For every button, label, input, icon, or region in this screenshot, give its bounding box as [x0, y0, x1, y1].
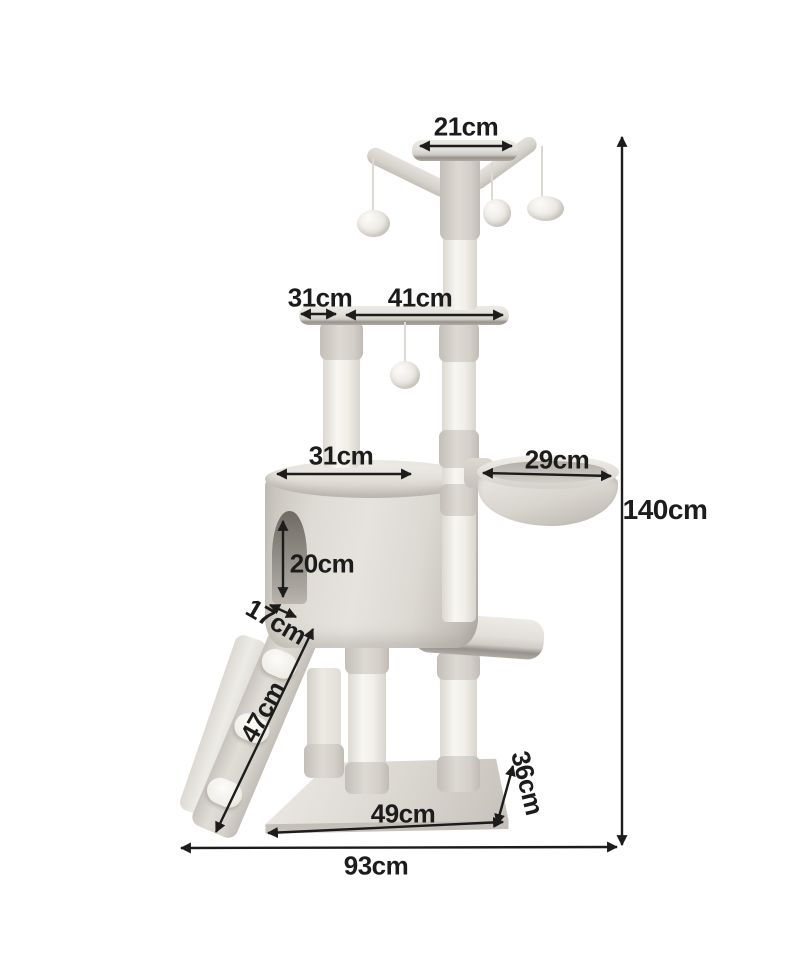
- dim-label-base-front-width: 49cm: [371, 799, 436, 830]
- dim-label-total-height: 140cm: [623, 494, 708, 526]
- dim-label-top-platform: 21cm: [434, 112, 499, 143]
- dim-label-entrance-height: 20cm: [290, 549, 355, 580]
- dim-label-basket-width: 29cm: [525, 445, 590, 476]
- dimension-arrows: [0, 0, 800, 977]
- dim-line-total-width: [181, 847, 617, 848]
- dim-label-total-width: 93cm: [344, 851, 409, 882]
- dim-label-upper-platform-main: 41cm: [388, 283, 453, 314]
- diagram-canvas: 21cm 31cm 41cm 31cm 29cm 20cm 17cm 47cm …: [0, 0, 800, 977]
- dim-label-condo-width: 31cm: [309, 441, 374, 472]
- dim-label-upper-platform-left: 31cm: [288, 283, 353, 314]
